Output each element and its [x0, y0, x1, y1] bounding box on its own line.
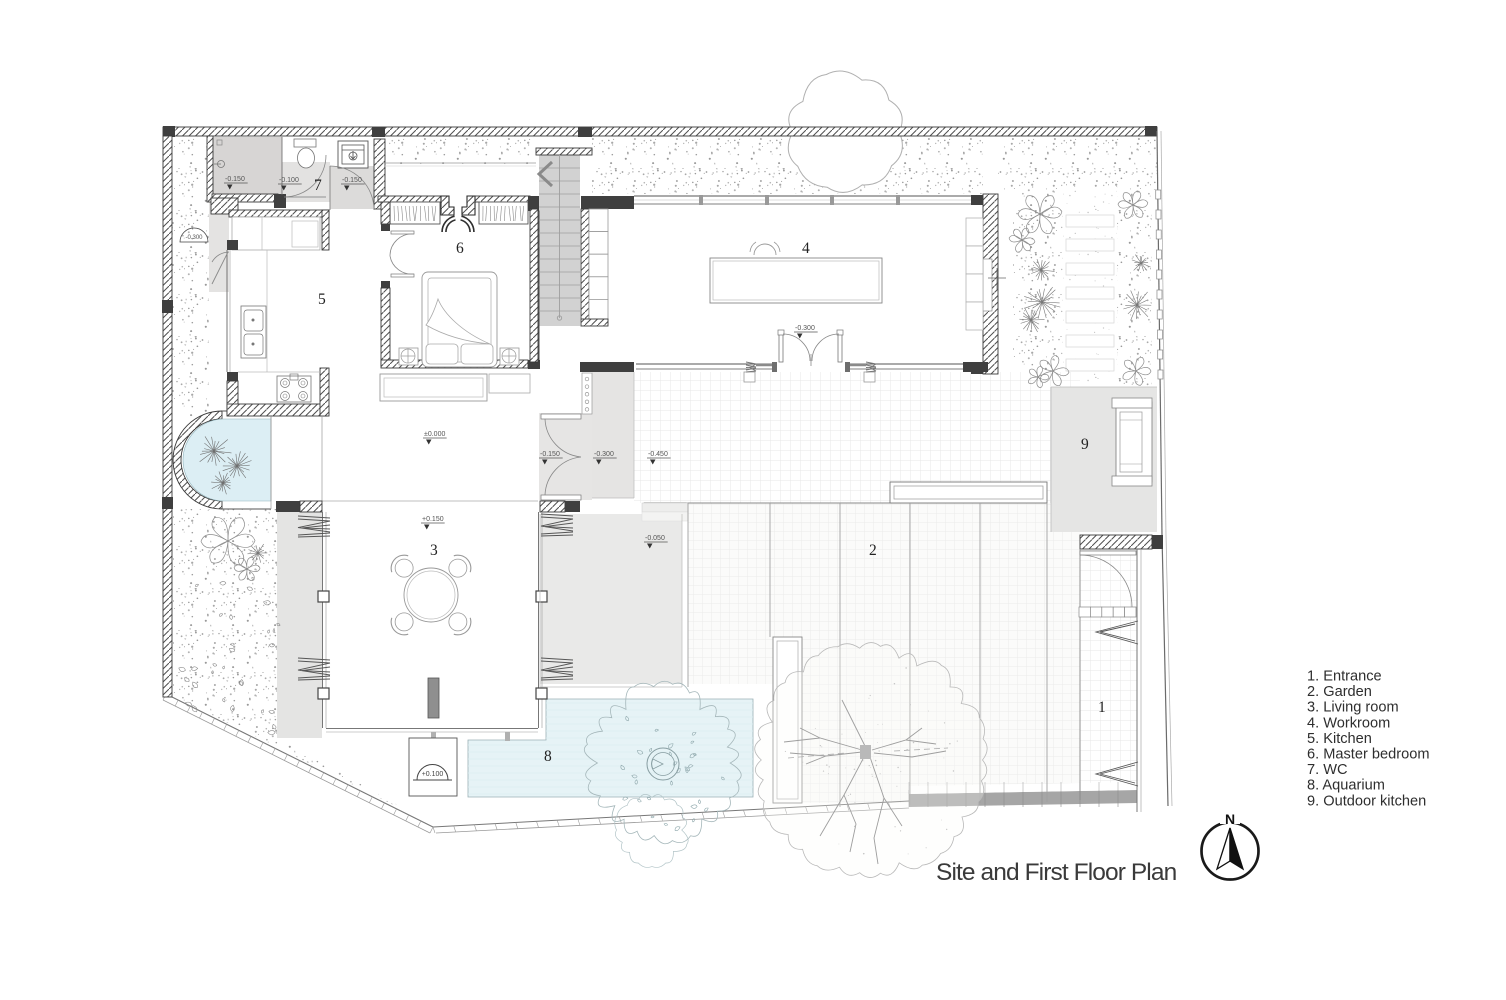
- svg-text:3: 3: [430, 542, 438, 559]
- svg-text:5. Kitchen: 5. Kitchen: [1307, 731, 1372, 747]
- svg-text:-0.150: -0.150: [342, 177, 362, 184]
- svg-text:-0.150: -0.150: [225, 176, 245, 183]
- svg-text:-0.300: -0.300: [795, 325, 815, 332]
- svg-text:±0.000: ±0.000: [424, 431, 445, 438]
- svg-text:2. Garden: 2. Garden: [1307, 684, 1372, 700]
- svg-text:1: 1: [1098, 699, 1106, 716]
- svg-text:5: 5: [318, 291, 326, 308]
- svg-text:-0.450: -0.450: [648, 451, 668, 458]
- svg-text:7. WC: 7. WC: [1307, 762, 1348, 778]
- svg-text:2: 2: [869, 542, 877, 559]
- svg-text:-0.300: -0.300: [185, 235, 203, 241]
- svg-text:6: 6: [456, 240, 464, 257]
- svg-text:4: 4: [802, 240, 810, 257]
- svg-text:-0.050: -0.050: [645, 535, 665, 542]
- svg-text:9: 9: [1081, 436, 1089, 453]
- svg-text:4. Workroom: 4. Workroom: [1307, 715, 1390, 731]
- svg-text:-0.100: -0.100: [279, 177, 299, 184]
- svg-text:8: 8: [544, 748, 552, 765]
- svg-text:1. Entrance: 1. Entrance: [1307, 669, 1382, 685]
- svg-text:8. Aquarium: 8. Aquarium: [1307, 778, 1385, 794]
- svg-text:+0.100: +0.100: [422, 771, 444, 778]
- svg-text:7: 7: [314, 177, 322, 194]
- svg-text:-0.150: -0.150: [540, 451, 560, 458]
- svg-text:+0.150: +0.150: [422, 516, 444, 523]
- svg-text:6. Master bedroom: 6. Master bedroom: [1307, 747, 1429, 763]
- svg-text:-0.300: -0.300: [594, 451, 614, 458]
- svg-text:Site and First Floor Plan: Site and First Floor Plan: [936, 859, 1177, 886]
- svg-text:N: N: [1225, 811, 1235, 827]
- svg-text:9. Outdoor kitchen: 9. Outdoor kitchen: [1307, 793, 1426, 809]
- svg-text:3. Living room: 3. Living room: [1307, 700, 1399, 716]
